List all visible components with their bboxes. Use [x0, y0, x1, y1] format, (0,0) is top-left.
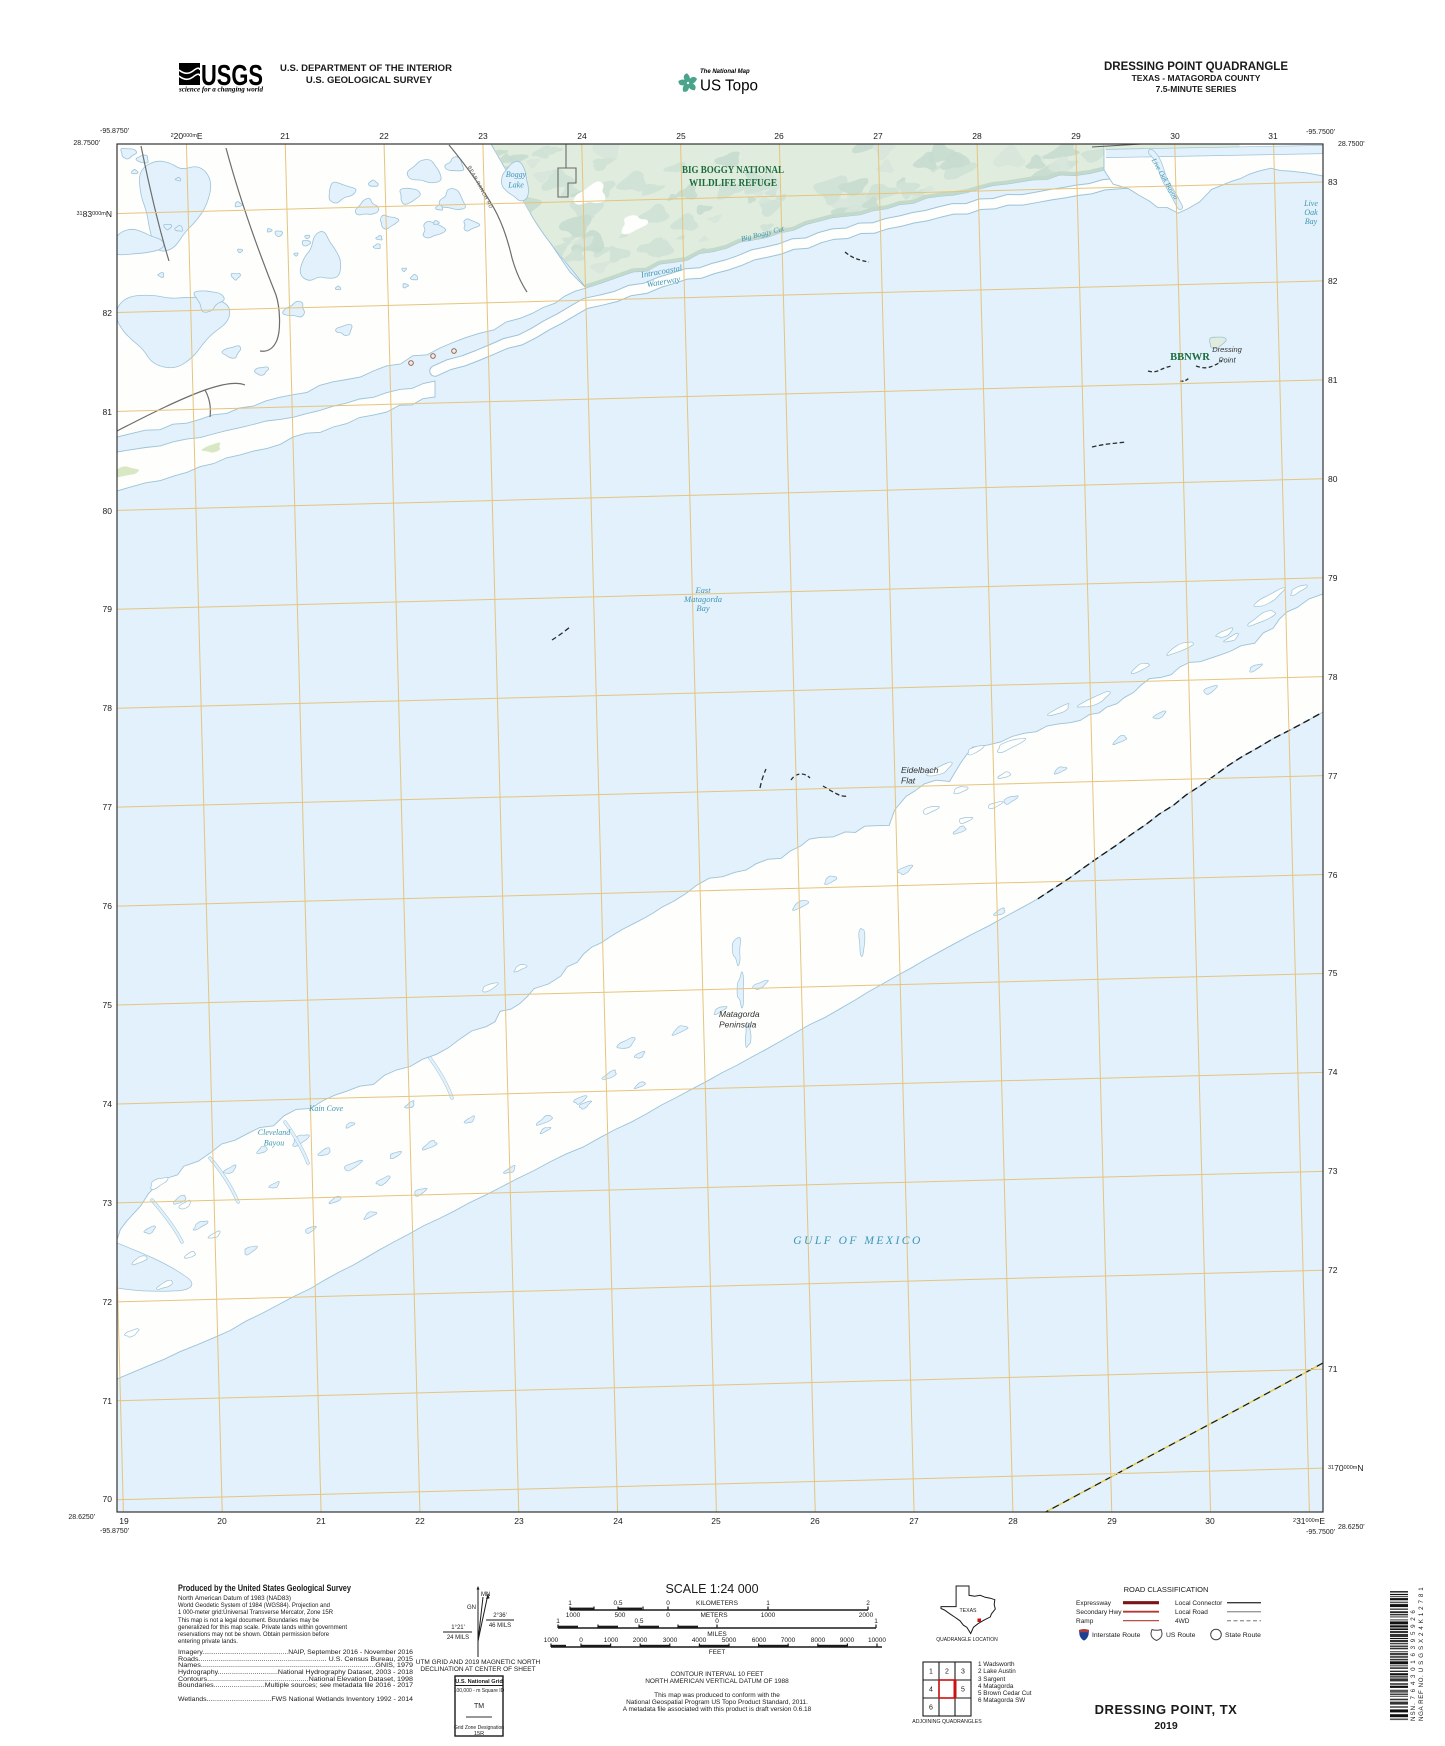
svg-text:75: 75: [103, 1000, 113, 1010]
svg-text:BIG BOGGY NATIONAL: BIG BOGGY NATIONAL: [682, 165, 784, 176]
svg-text:74: 74: [103, 1099, 113, 1109]
svg-text:4WD: 4WD: [1175, 1618, 1190, 1625]
svg-text:1°21': 1°21': [451, 1625, 465, 1631]
svg-text:29: 29: [1107, 1516, 1117, 1526]
svg-text:0.5: 0.5: [613, 1600, 622, 1607]
svg-text:2 Lake Austin: 2 Lake Austin: [978, 1668, 1016, 1675]
svg-text:State Route: State Route: [1225, 1632, 1261, 1639]
svg-text:US Topo: US Topo: [700, 78, 758, 95]
svg-text:Dressing: Dressing: [1212, 345, 1242, 354]
svg-text:Wetlands......................: Wetlands................................…: [178, 1696, 414, 1703]
svg-text:Boundaries....................: Boundaries..........................Mult…: [178, 1682, 414, 1689]
svg-text:27: 27: [873, 131, 883, 141]
svg-text:3 Sargent: 3 Sargent: [978, 1676, 1006, 1683]
svg-text:KILOMETERS: KILOMETERS: [696, 1600, 739, 1607]
svg-text:2000: 2000: [859, 1612, 874, 1619]
svg-text:Local Road: Local Road: [1175, 1609, 1208, 1616]
svg-text:Peninsula: Peninsula: [719, 1020, 757, 1030]
svg-text:Point: Point: [1218, 356, 1236, 365]
svg-text:76: 76: [103, 901, 113, 911]
svg-text:DECLINATION AT CENTER OF SHEET: DECLINATION AT CENTER OF SHEET: [420, 1666, 535, 1673]
svg-text:Bay: Bay: [696, 603, 709, 613]
svg-text:71: 71: [1328, 1364, 1338, 1374]
svg-text:28.7500': 28.7500': [73, 140, 100, 147]
svg-text:6: 6: [929, 1705, 933, 1712]
svg-text:Lake: Lake: [507, 181, 524, 190]
svg-text:Secondary Hwy: Secondary Hwy: [1076, 1609, 1122, 1616]
svg-text:Imagery.......................: Imagery.................................…: [178, 1649, 414, 1656]
svg-text:This map is not a legal docume: This map is not a legal document. Bounda…: [178, 1617, 319, 1624]
svg-text:10000: 10000: [868, 1637, 886, 1644]
svg-text:9000: 9000: [840, 1637, 855, 1644]
svg-text:NORTH AMERICAN VERTICAL DATUM: NORTH AMERICAN VERTICAL DATUM OF 1988: [645, 1678, 789, 1685]
svg-text:73: 73: [103, 1198, 113, 1208]
svg-text:Matagorda: Matagorda: [719, 1009, 760, 1019]
svg-text:generalized for this map scale: generalized for this map scale. Private …: [178, 1624, 347, 1631]
svg-text:3000: 3000: [663, 1637, 678, 1644]
svg-text:Live: Live: [1303, 199, 1318, 208]
svg-text:72: 72: [1328, 1265, 1338, 1275]
svg-text:28.6250': 28.6250': [1338, 1524, 1365, 1531]
svg-text:76: 76: [1328, 870, 1338, 880]
svg-text:1: 1: [766, 1600, 770, 1607]
svg-text:23: 23: [514, 1516, 524, 1526]
svg-text:29: 29: [1071, 131, 1081, 141]
svg-text:ROAD CLASSIFICATION: ROAD CLASSIFICATION: [1124, 1585, 1209, 1594]
svg-text:Interstate Route: Interstate Route: [1092, 1632, 1141, 1639]
svg-text:Local Connector: Local Connector: [1175, 1600, 1223, 1607]
svg-text:2019: 2019: [1154, 1720, 1178, 1732]
svg-text:25: 25: [676, 131, 686, 141]
svg-text:22: 22: [415, 1516, 425, 1526]
svg-text:U.S. DEPARTMENT OF THE INTERIO: U.S. DEPARTMENT OF THE INTERIOR: [280, 63, 452, 74]
svg-text:Cleveland: Cleveland: [258, 1128, 291, 1137]
svg-text:80: 80: [1328, 474, 1338, 484]
svg-text:5: 5: [961, 1687, 965, 1694]
svg-text:31: 31: [1268, 131, 1278, 141]
svg-text:1 Wadsworth: 1 Wadsworth: [978, 1661, 1015, 1668]
svg-text:Oak: Oak: [1304, 208, 1318, 217]
svg-text:1: 1: [929, 1669, 933, 1676]
svg-text:Hydrography...................: Hydrography.............................…: [178, 1669, 414, 1676]
svg-text:1: 1: [874, 1618, 878, 1625]
svg-text:72: 72: [103, 1297, 113, 1307]
svg-text:5000: 5000: [722, 1637, 737, 1644]
svg-text:28.7500': 28.7500': [1338, 141, 1365, 148]
svg-text:U.S. GEOLOGICAL SURVEY: U.S. GEOLOGICAL SURVEY: [306, 75, 433, 86]
svg-text:500: 500: [615, 1612, 626, 1619]
svg-text:73: 73: [1328, 1166, 1338, 1176]
svg-text:78: 78: [1328, 672, 1338, 682]
svg-text:-95.8750': -95.8750': [100, 1528, 129, 1535]
svg-text:26: 26: [810, 1516, 820, 1526]
svg-text:Kain Cove: Kain Cove: [308, 1104, 343, 1113]
svg-text:Expressway: Expressway: [1076, 1600, 1112, 1607]
svg-text:28: 28: [972, 131, 982, 141]
svg-text:DRESSING POINT, TX: DRESSING POINT, TX: [1095, 1702, 1238, 1717]
svg-text:82: 82: [103, 308, 113, 318]
svg-text:2°36': 2°36': [493, 1613, 507, 1619]
svg-text:Flat: Flat: [901, 776, 916, 786]
svg-text:30: 30: [1170, 131, 1180, 141]
svg-text:23: 23: [478, 131, 488, 141]
svg-text:North American Datum of 1983 (: North American Datum of 1983 (NAD83): [178, 1595, 291, 1602]
svg-text:GN: GN: [467, 1605, 476, 1611]
svg-text:24: 24: [577, 131, 587, 141]
svg-text:-95.7500': -95.7500': [1306, 1529, 1335, 1536]
svg-text:3: 3: [961, 1669, 965, 1676]
svg-text:15R: 15R: [474, 1731, 484, 1737]
svg-text:81: 81: [1328, 375, 1338, 385]
svg-text:7000: 7000: [781, 1637, 796, 1644]
svg-text:SCALE 1:24 000: SCALE 1:24 000: [665, 1582, 758, 1596]
svg-text:science for a changing world: science for a changing world: [178, 86, 263, 94]
svg-text:7.5-MINUTE SERIES: 7.5-MINUTE SERIES: [1156, 84, 1237, 94]
svg-text:46 MILS: 46 MILS: [489, 1623, 511, 1629]
svg-text:1: 1: [568, 1600, 572, 1607]
svg-text:-95.7500': -95.7500': [1306, 129, 1335, 136]
svg-text:28.6250': 28.6250': [68, 1514, 95, 1521]
svg-text:71: 71: [103, 1396, 113, 1406]
svg-text:MN: MN: [481, 1592, 490, 1598]
svg-text:78: 78: [103, 703, 113, 713]
svg-text:National Geospatial Program US: National Geospatial Program US Topo Prod…: [626, 1699, 808, 1706]
svg-text:The National Map: The National Map: [700, 69, 750, 75]
svg-text:World Geodetic System of 1984: World Geodetic System of 1984 (WGS84). P…: [178, 1602, 330, 1609]
svg-text:Bay: Bay: [1305, 217, 1318, 226]
svg-text:74: 74: [1328, 1067, 1338, 1077]
svg-text:WILDLIFE REFUGE: WILDLIFE REFUGE: [689, 178, 777, 189]
svg-text:24 MILS: 24 MILS: [447, 1635, 469, 1641]
svg-text:2: 2: [866, 1600, 870, 1607]
svg-text:entering private lands.: entering private lands.: [178, 1638, 238, 1645]
svg-text:6 Matagorda SW: 6 Matagorda SW: [978, 1697, 1025, 1704]
svg-text:U.S. National Grid: U.S. National Grid: [455, 1679, 503, 1685]
svg-text:6000: 6000: [752, 1637, 767, 1644]
svg-text:75: 75: [1328, 968, 1338, 978]
svg-text:Ramp: Ramp: [1076, 1618, 1094, 1625]
svg-text:TEXAS - MATAGORDA COUNTY: TEXAS - MATAGORDA COUNTY: [1132, 73, 1261, 83]
svg-text:Names.........................: Names...................................…: [178, 1662, 414, 1669]
svg-text:1000: 1000: [604, 1637, 619, 1644]
svg-text:reservations may not be shown.: reservations may not be shown. Obtain pe…: [178, 1631, 329, 1638]
svg-text:83: 83: [1328, 177, 1338, 187]
svg-text:1000: 1000: [544, 1637, 559, 1644]
svg-text:27: 27: [909, 1516, 919, 1526]
svg-text:8000: 8000: [811, 1637, 826, 1644]
svg-text:CONTOUR INTERVAL 10 FEET: CONTOUR INTERVAL 10 FEET: [671, 1671, 764, 1678]
svg-text:20: 20: [217, 1516, 227, 1526]
svg-text:0: 0: [715, 1618, 719, 1625]
svg-text:TEXAS: TEXAS: [959, 1608, 977, 1614]
svg-text:5 Brown Cedar Cut: 5 Brown Cedar Cut: [978, 1690, 1032, 1697]
svg-text:Bayou: Bayou: [264, 1139, 284, 1148]
svg-text:100,000 - m Square ID: 100,000 - m Square ID: [454, 1688, 505, 1694]
svg-text:26: 26: [774, 131, 784, 141]
svg-text:79: 79: [1328, 573, 1338, 583]
svg-text:21: 21: [316, 1516, 326, 1526]
svg-text:NSN. 7 6 4 3 0 1 6 3 9 5 9 2: NSN. 7 6 4 3 0 1 6 3 9 5 9 2 6: [1410, 1609, 1417, 1721]
svg-text:28: 28: [1008, 1516, 1018, 1526]
svg-text:0: 0: [666, 1612, 670, 1619]
svg-text:0.5: 0.5: [634, 1618, 643, 1625]
svg-text:80: 80: [103, 506, 113, 516]
svg-text:TM: TM: [474, 1703, 484, 1710]
svg-text:21: 21: [280, 131, 290, 141]
svg-text:4: 4: [929, 1687, 933, 1694]
svg-text:QUADRANGLE LOCATION: QUADRANGLE LOCATION: [936, 1637, 998, 1643]
svg-text:-95.8750': -95.8750': [100, 128, 129, 135]
svg-text:77: 77: [103, 802, 113, 812]
svg-text:81: 81: [103, 407, 113, 417]
svg-text:25: 25: [711, 1516, 721, 1526]
svg-text:US Route: US Route: [1166, 1632, 1196, 1639]
svg-text:A metadata file associated wit: A metadata file associated with this pro…: [623, 1706, 812, 1713]
svg-text:1 000-meter grid:Universal Tra: 1 000-meter grid:Universal Transverse Me…: [178, 1609, 333, 1616]
svg-text:19: 19: [119, 1516, 129, 1526]
svg-text:BBNWR: BBNWR: [1170, 352, 1210, 363]
svg-text:24: 24: [613, 1516, 623, 1526]
svg-text:ADJOINING QUADRANGLES: ADJOINING QUADRANGLES: [912, 1719, 982, 1725]
svg-text:0: 0: [579, 1637, 583, 1644]
svg-text:82: 82: [1328, 276, 1338, 286]
svg-text:70: 70: [103, 1494, 113, 1504]
svg-text:77: 77: [1328, 771, 1338, 781]
svg-text:Eidelbach: Eidelbach: [901, 765, 939, 775]
svg-text:2000: 2000: [633, 1637, 648, 1644]
svg-text:2: 2: [945, 1669, 949, 1676]
svg-text:1000: 1000: [566, 1612, 581, 1619]
svg-text:UTM GRID AND 2019 MAGNETIC NOR: UTM GRID AND 2019 MAGNETIC NORTH: [416, 1659, 541, 1666]
svg-text:79: 79: [103, 604, 113, 614]
svg-text:1000: 1000: [761, 1612, 776, 1619]
svg-text:0: 0: [666, 1600, 670, 1607]
svg-text:DRESSING POINT QUADRANGLE: DRESSING POINT QUADRANGLE: [1104, 61, 1288, 73]
svg-text:22: 22: [379, 131, 389, 141]
svg-text:4000: 4000: [692, 1637, 707, 1644]
svg-text:FEET: FEET: [709, 1649, 726, 1656]
svg-text:NGA REF NO. U S G S X 2 4 K 1: NGA REF NO. U S G S X 2 4 K 1 2 7 8 1: [1418, 1587, 1425, 1721]
svg-text:1: 1: [556, 1618, 560, 1625]
svg-text:4 Matagorda: 4 Matagorda: [978, 1683, 1014, 1690]
svg-text:30: 30: [1205, 1516, 1215, 1526]
svg-text:Produced by the United States: Produced by the United States Geological…: [178, 1583, 352, 1594]
svg-text:GULF OF MEXICO: GULF OF MEXICO: [793, 1235, 923, 1247]
svg-text:This map was produced to confo: This map was produced to conform with th…: [654, 1692, 780, 1699]
svg-text:Boggy: Boggy: [506, 170, 527, 179]
